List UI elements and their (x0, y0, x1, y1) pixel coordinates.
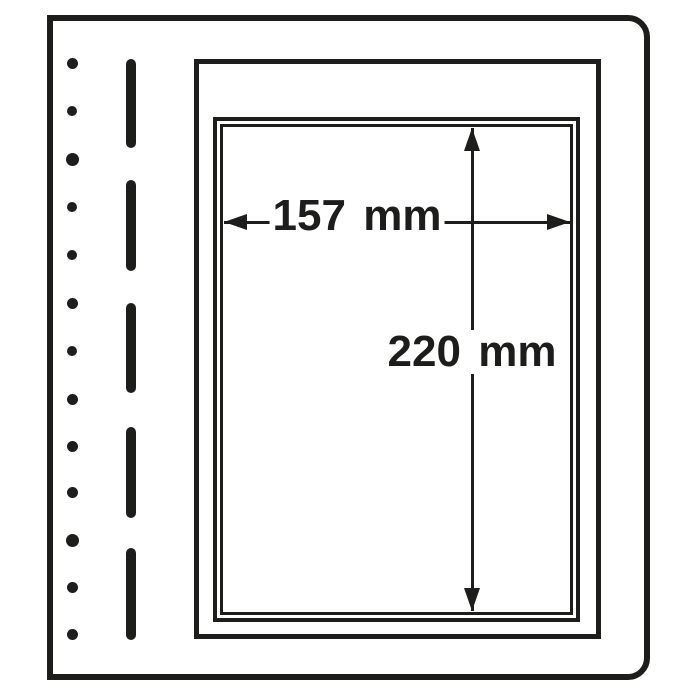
height-arrow-up-icon (464, 128, 480, 151)
binder-hole-dot (67, 58, 78, 69)
width-arrow-right-icon (547, 214, 570, 230)
width-dimension-label: 157 mm (270, 194, 445, 238)
binder-hole-dot (67, 441, 78, 452)
binder-hole-dot (67, 394, 78, 405)
binder-hole-dot (66, 153, 79, 166)
binder-hole-dot (67, 487, 78, 498)
perforation-dash (126, 59, 136, 148)
binder-hole-dot (66, 534, 79, 547)
width-arrow-left-icon (224, 214, 247, 230)
height-arrow-down-icon (464, 588, 480, 611)
binder-hole-dot (67, 202, 77, 212)
height-dimension-label: 220 mm (385, 330, 560, 374)
binder-hole-dot (67, 250, 77, 260)
binder-hole-dot (67, 346, 77, 356)
perforation-dash (126, 303, 136, 393)
binder-hole-dot (67, 298, 78, 309)
perforation-dash (126, 180, 136, 271)
perforation-dash (126, 427, 136, 518)
diagram-canvas: 157 mm 220 mm (0, 0, 700, 700)
binder-hole-dot (67, 106, 77, 116)
binder-hole-dot (67, 629, 78, 640)
perforation-dash (126, 548, 136, 640)
binder-hole-dot (67, 582, 78, 593)
